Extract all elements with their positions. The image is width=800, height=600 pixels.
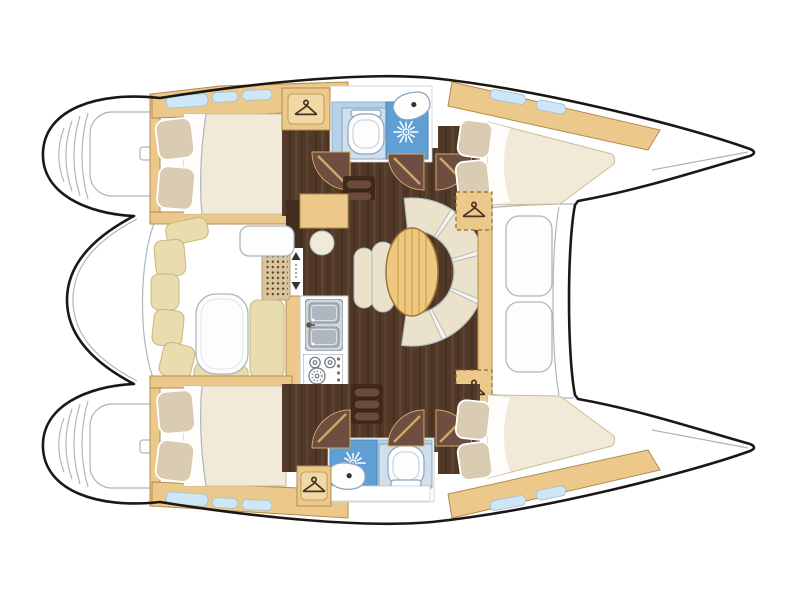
pillow bbox=[156, 390, 196, 435]
companionway-steps-icon bbox=[351, 384, 383, 424]
pillow bbox=[155, 117, 196, 161]
starboard-aft-wardrobe bbox=[297, 466, 331, 506]
saloon-front-window bbox=[506, 216, 552, 296]
cockpit-seat bbox=[250, 300, 284, 378]
bench-seat bbox=[354, 248, 374, 308]
pillow bbox=[155, 439, 196, 483]
stove-icon bbox=[303, 354, 343, 388]
chart-table bbox=[300, 194, 348, 228]
port-forward-cabin bbox=[448, 82, 660, 205]
pillow bbox=[457, 441, 494, 481]
boat-plan-canvas bbox=[0, 0, 800, 600]
double-sink-icon bbox=[305, 299, 343, 351]
pillow bbox=[156, 166, 196, 211]
starboard-forward-cabin bbox=[448, 395, 660, 518]
toilet-icon bbox=[348, 110, 384, 154]
toilet-icon bbox=[388, 446, 424, 487]
port-head bbox=[330, 86, 432, 162]
cockpit bbox=[151, 216, 294, 388]
catamaran-floor-plan bbox=[0, 0, 800, 600]
saloon-front-window bbox=[506, 302, 552, 372]
saloon-wardrobe-fwd-port bbox=[456, 192, 492, 230]
saloon bbox=[286, 192, 492, 408]
mat-dots bbox=[264, 254, 288, 298]
aft-platform-line bbox=[73, 219, 137, 381]
nav-stool bbox=[310, 231, 334, 255]
helm-seat bbox=[240, 226, 294, 256]
foredeck bbox=[506, 216, 552, 372]
pillow bbox=[457, 119, 494, 159]
pillow bbox=[455, 399, 491, 440]
port-aft-wardrobe bbox=[282, 88, 330, 130]
galley bbox=[300, 296, 348, 388]
